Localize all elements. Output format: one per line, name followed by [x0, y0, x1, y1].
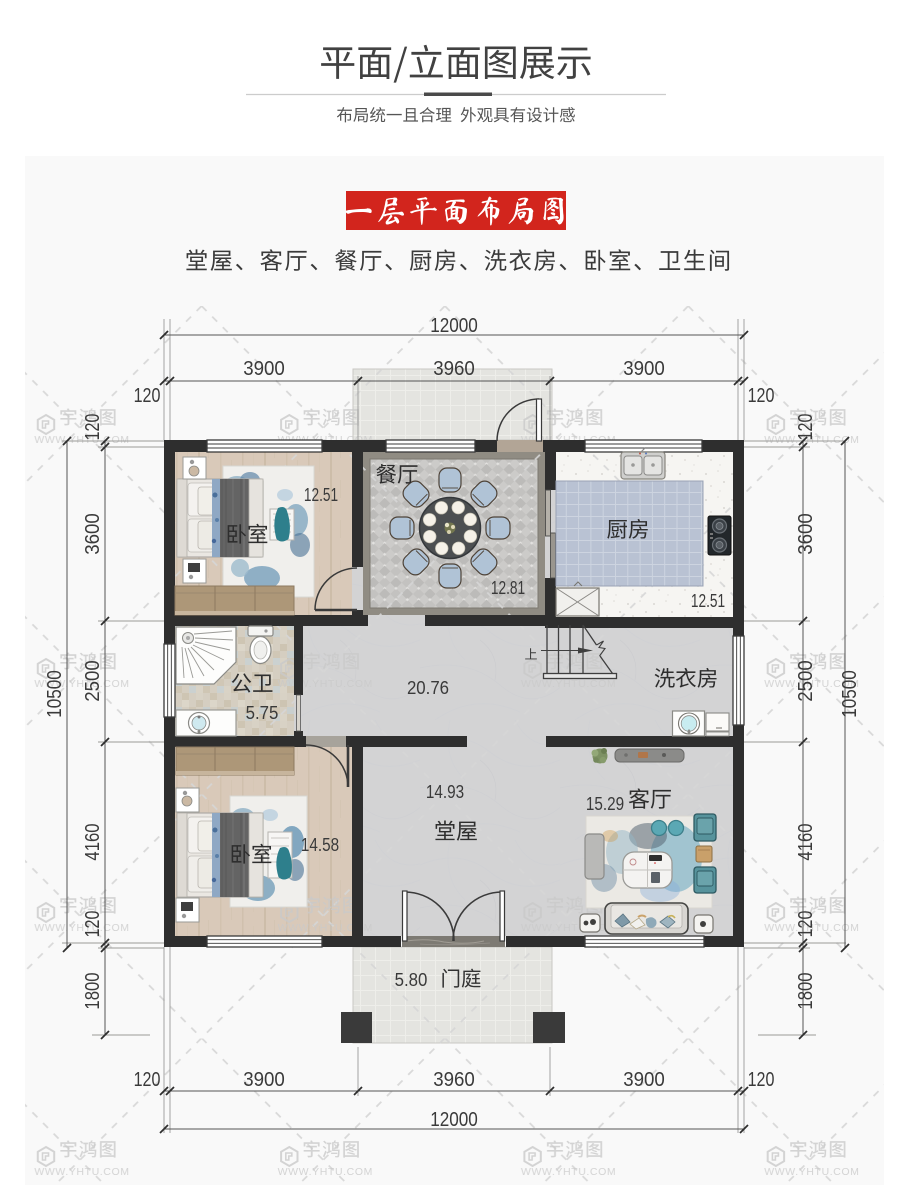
svg-text:5.80: 5.80 — [395, 970, 428, 990]
svg-text:3600: 3600 — [795, 513, 817, 555]
svg-text:120: 120 — [82, 414, 104, 441]
svg-text:12000: 12000 — [430, 315, 478, 337]
svg-text:12000: 12000 — [430, 1109, 478, 1131]
svg-text:3900: 3900 — [243, 1069, 285, 1091]
svg-text:12.51: 12.51 — [304, 485, 338, 505]
svg-text:12.51: 12.51 — [691, 591, 725, 611]
svg-text:4160: 4160 — [82, 823, 104, 860]
svg-text:10500: 10500 — [44, 670, 66, 718]
svg-text:3600: 3600 — [82, 513, 104, 555]
svg-text:20.76: 20.76 — [407, 678, 449, 698]
svg-text:120: 120 — [748, 1069, 775, 1091]
svg-text:120: 120 — [748, 385, 775, 407]
svg-text:5.75: 5.75 — [246, 703, 279, 723]
svg-text:3900: 3900 — [623, 358, 665, 380]
svg-text:1800: 1800 — [82, 972, 104, 1009]
svg-text:10500: 10500 — [839, 670, 861, 718]
svg-text:15.29: 15.29 — [586, 794, 624, 814]
svg-text:3900: 3900 — [243, 358, 285, 380]
svg-text:14.58: 14.58 — [301, 835, 339, 855]
svg-text:3960: 3960 — [433, 358, 475, 380]
svg-text:1800: 1800 — [795, 972, 817, 1009]
svg-text:3900: 3900 — [623, 1069, 665, 1091]
svg-text:4160: 4160 — [795, 823, 817, 860]
svg-text:120: 120 — [82, 911, 104, 938]
svg-text:120: 120 — [795, 414, 817, 441]
svg-text:120: 120 — [134, 1069, 161, 1091]
svg-text:120: 120 — [795, 911, 817, 938]
svg-text:2500: 2500 — [795, 660, 817, 702]
svg-text:14.93: 14.93 — [426, 782, 464, 802]
svg-text:120: 120 — [134, 385, 161, 407]
svg-text:2500: 2500 — [82, 660, 104, 702]
svg-text:3960: 3960 — [433, 1069, 475, 1091]
svg-text:12.81: 12.81 — [491, 578, 525, 598]
